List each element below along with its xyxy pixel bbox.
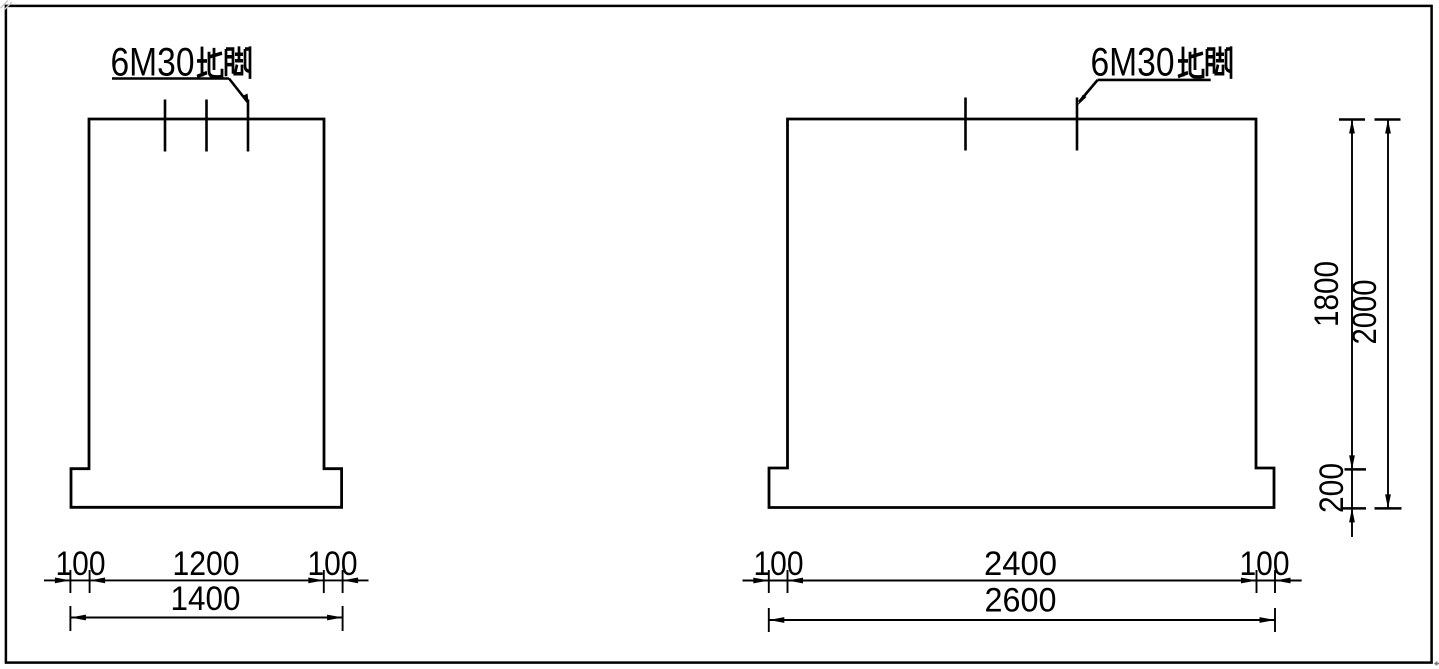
svg-text:200: 200 xyxy=(1313,463,1351,513)
svg-text:2400: 2400 xyxy=(984,545,1057,583)
svg-text:1200: 1200 xyxy=(173,545,240,583)
svg-text:100: 100 xyxy=(56,545,106,583)
svg-text:2000: 2000 xyxy=(1346,280,1384,345)
svg-text:2600: 2600 xyxy=(985,582,1057,620)
svg-text:100: 100 xyxy=(1240,545,1290,583)
svg-text:1400: 1400 xyxy=(171,580,241,618)
svg-text:1800: 1800 xyxy=(1308,261,1346,327)
svg-text:100: 100 xyxy=(308,545,358,583)
svg-text:6M30: 6M30 xyxy=(1091,41,1175,85)
svg-text:100: 100 xyxy=(754,545,804,583)
